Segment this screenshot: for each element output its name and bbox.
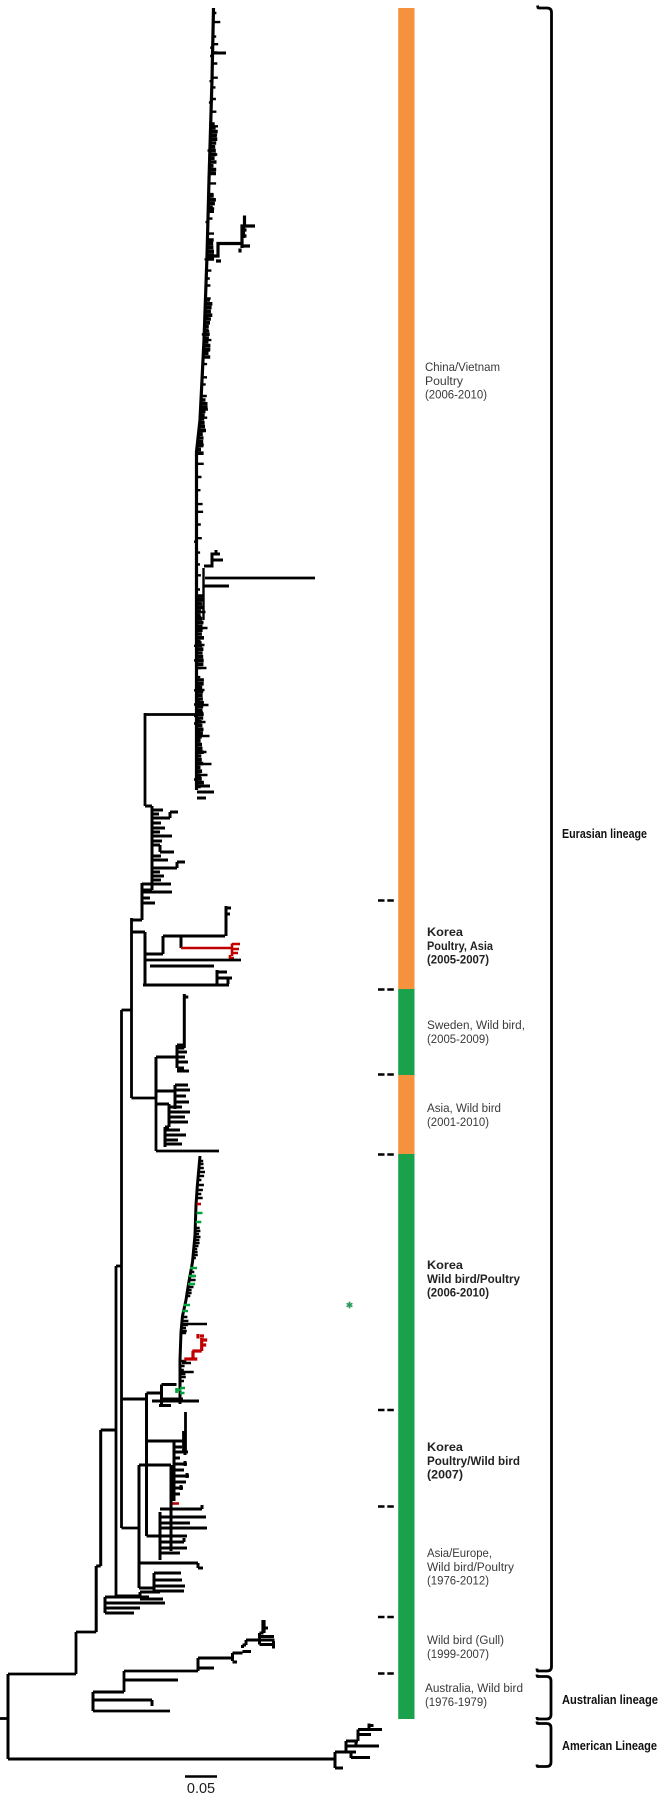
svg-text:Eurasian lineage: Eurasian lineage bbox=[562, 827, 647, 841]
svg-text:Asia, Wild bird(2001-2010): Asia, Wild bird(2001-2010) bbox=[427, 1101, 501, 1129]
svg-text:0.05: 0.05 bbox=[187, 1781, 215, 1797]
svg-text:Australia, Wild bird(1976-1979: Australia, Wild bird(1976-1979) bbox=[425, 1681, 523, 1709]
svg-text:American Lineage: American Lineage bbox=[562, 1739, 657, 1753]
svg-text:KoreaPoultry, Asia(2005-2007): KoreaPoultry, Asia(2005-2007) bbox=[427, 925, 493, 967]
svg-text:Sweden, Wild bird,(2005-2009): Sweden, Wild bird,(2005-2009) bbox=[427, 1018, 525, 1046]
svg-text:KoreaWild bird/Poultry(2006-20: KoreaWild bird/Poultry(2006-2010) bbox=[427, 1258, 520, 1300]
svg-text:Australian lineage: Australian lineage bbox=[562, 1693, 658, 1707]
svg-text:Wild bird (Gull)(1999-2007): Wild bird (Gull)(1999-2007) bbox=[427, 1633, 504, 1661]
svg-text:China/VietnamPoultry(2006-2010: China/VietnamPoultry(2006-2010) bbox=[425, 360, 500, 402]
svg-text:KoreaPoultry/Wild bird(2007): KoreaPoultry/Wild bird(2007) bbox=[427, 1440, 520, 1482]
svg-text:Asia/Europe,Wild bird/Poultry(: Asia/Europe,Wild bird/Poultry(1976-2012) bbox=[427, 1546, 515, 1588]
